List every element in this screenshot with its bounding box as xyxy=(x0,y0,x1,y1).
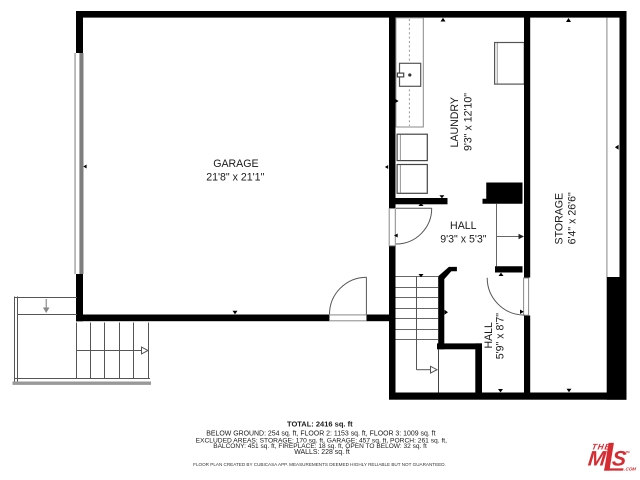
svg-text:FLOOR PLAN CREATED BY CUBICASA: FLOOR PLAN CREATED BY CUBICASA APP. MEAS… xyxy=(193,462,446,467)
svg-text:GARAGE: GARAGE xyxy=(213,158,258,170)
svg-text:9'3" x 12'10": 9'3" x 12'10" xyxy=(462,93,474,151)
svg-text:6'4" x 26'6": 6'4" x 26'6" xyxy=(567,192,579,244)
svg-text:TM: TM xyxy=(626,450,631,454)
svg-text:STORAGE: STORAGE xyxy=(553,193,565,245)
svg-text:HALL: HALL xyxy=(450,220,477,232)
svg-text:TOTAL: 2416 sq. ft: TOTAL: 2416 sq. ft xyxy=(287,420,353,429)
svg-text:HALL: HALL xyxy=(483,322,495,349)
svg-text:WALLS: 228 sq. ft: WALLS: 228 sq. ft xyxy=(294,449,350,456)
svg-text:5'9" x 8'7": 5'9" x 8'7" xyxy=(494,313,506,360)
svg-text:M: M xyxy=(587,448,607,471)
svg-text:.COM: .COM xyxy=(624,467,637,472)
svg-text:9'3" x 5'3": 9'3" x 5'3" xyxy=(440,233,487,245)
svg-text:LAUNDRY: LAUNDRY xyxy=(449,97,461,147)
svg-text:21'8" x 21'1": 21'8" x 21'1" xyxy=(206,172,264,184)
